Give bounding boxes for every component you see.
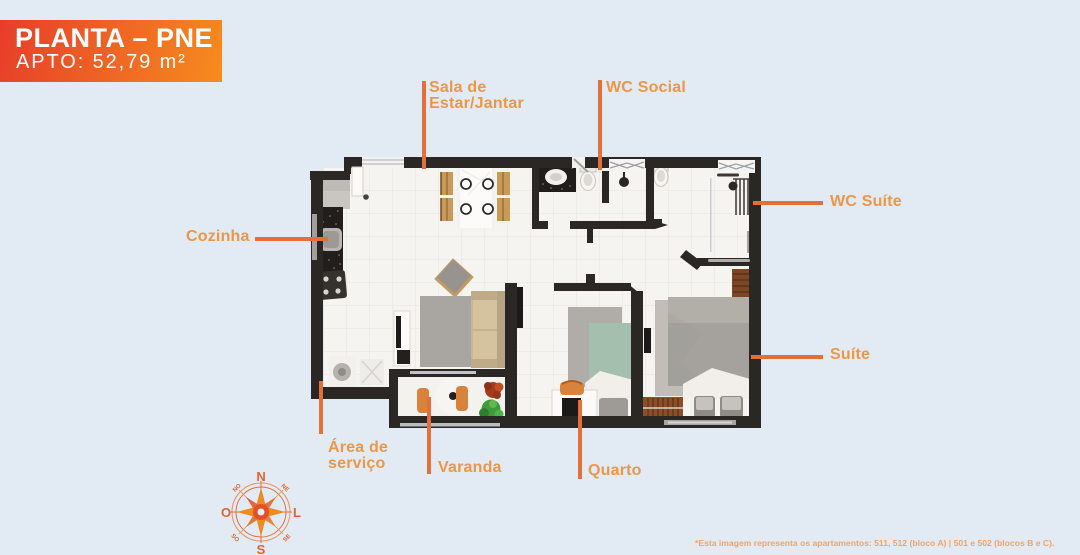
svg-text:S: S xyxy=(257,542,266,555)
svg-text:L: L xyxy=(293,505,301,520)
svg-text:N: N xyxy=(256,469,265,484)
svg-text:SO: SO xyxy=(229,533,240,544)
svg-text:O: O xyxy=(221,505,231,520)
svg-text:SE: SE xyxy=(282,533,292,543)
